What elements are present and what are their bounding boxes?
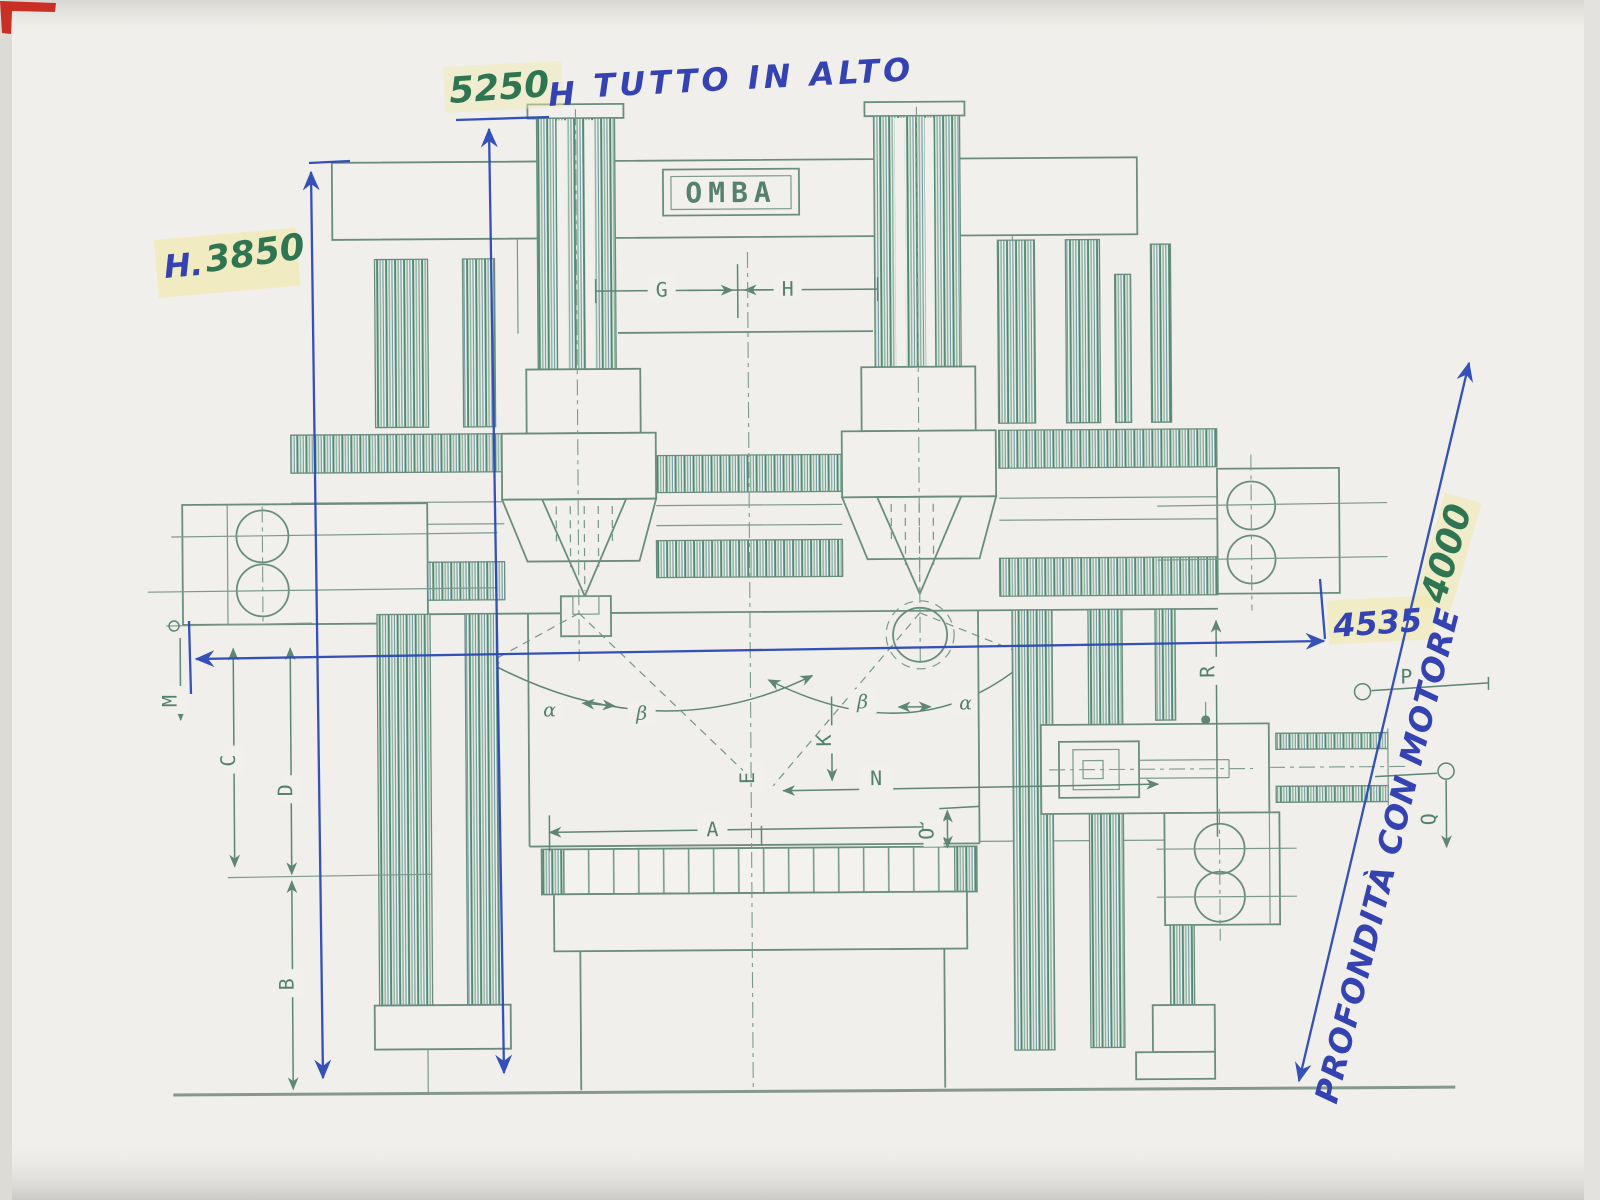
annotation-total-height-unit: H: [547, 74, 577, 114]
left-ram-slot: [585, 120, 596, 371]
dim-label-a: A: [706, 817, 718, 841]
dim-label-n: N: [870, 766, 882, 790]
scan-shadow-bottom: [0, 1140, 1600, 1200]
left-ram-column: [536, 118, 616, 374]
hatch-column: [1155, 609, 1176, 720]
hatch-column: [997, 240, 1035, 423]
hatch-column: [1065, 240, 1100, 423]
motor-shaft-band: [1276, 733, 1388, 750]
hatch-column: [1170, 925, 1195, 1005]
beam-left-drop: [517, 239, 518, 334]
pedestal-left: [580, 951, 581, 1090]
dim-label-k: K: [812, 734, 836, 746]
right-ram-column: [873, 116, 961, 372]
left-foot: [375, 1005, 511, 1050]
scan-shadow-right: [1584, 0, 1600, 1200]
box-left-inner-line: [227, 505, 228, 625]
dim-label-r: R: [1195, 665, 1219, 678]
dim-label-alpha-left: α: [543, 699, 556, 721]
right-ram-slot: [924, 118, 935, 369]
shaft-line: [1139, 778, 1229, 779]
table-base: [554, 891, 967, 951]
head-body: [502, 433, 656, 500]
shaft-line: [1139, 760, 1229, 761]
right-ram-slot: [894, 118, 906, 369]
hatch-column: [377, 614, 433, 1005]
brand-label: OMBA: [685, 176, 777, 210]
crossrail-right-top-band: [999, 429, 1217, 469]
scan-shadow-left: [0, 0, 12, 1200]
gearbox-lower-housing: [1164, 812, 1280, 925]
pedestal-right: [944, 949, 945, 1088]
table-rim-cap: [542, 849, 564, 894]
dim-label-m: M: [158, 695, 182, 707]
box-left: [182, 503, 428, 625]
table-rim: [542, 846, 977, 894]
junction-dot: [1201, 715, 1210, 724]
tool-block: [561, 596, 611, 636]
dim-label-h: H: [782, 277, 794, 301]
scan-shadow-top: [0, 0, 1600, 38]
dim-label-c: C: [216, 755, 240, 767]
hatch-column: [374, 259, 428, 427]
dim-label-o: O: [914, 828, 938, 840]
dim-label-beta-left: β: [635, 703, 647, 725]
dim-label-q: Q: [1416, 813, 1440, 825]
right-foot-upper: [1153, 1005, 1215, 1052]
dim-label-beta-right: β: [856, 691, 868, 713]
annotation-total-height-value: 5250: [448, 64, 551, 112]
hatch-column: [465, 614, 500, 1005]
annotation-width-value: 4535: [1331, 601, 1423, 645]
right-ram: [864, 101, 966, 371]
annotation-machine-height-prefix: H.: [162, 245, 204, 286]
hatch-column: [1150, 244, 1171, 422]
crossrail-right-bottom-band: [1000, 557, 1218, 597]
dim-label-b: B: [274, 978, 298, 990]
dim-label-alpha-right: α: [959, 692, 972, 714]
hatch-column: [1115, 274, 1132, 422]
right-ram-cap: [864, 101, 964, 116]
hatch-column: [1088, 609, 1125, 1047]
scanned-page: OMBA G H: [0, 0, 1600, 1200]
right-foot-lower: [1136, 1052, 1215, 1080]
housing-double-wall: [1269, 812, 1270, 924]
dim-label-g: G: [656, 278, 668, 302]
head-upper: [526, 369, 640, 434]
crossrail-left-top-band: [291, 434, 504, 473]
dim-label-d: D: [273, 784, 297, 796]
hatch-column: [1012, 610, 1055, 1050]
head-taper: [502, 499, 656, 562]
dim-label-e: E: [735, 772, 759, 784]
left-ram-slot: [557, 120, 569, 371]
motor-shaft-band: [1276, 786, 1388, 803]
technical-drawing: OMBA G H: [0, 0, 1600, 1200]
table-rim-cap: [955, 846, 977, 891]
